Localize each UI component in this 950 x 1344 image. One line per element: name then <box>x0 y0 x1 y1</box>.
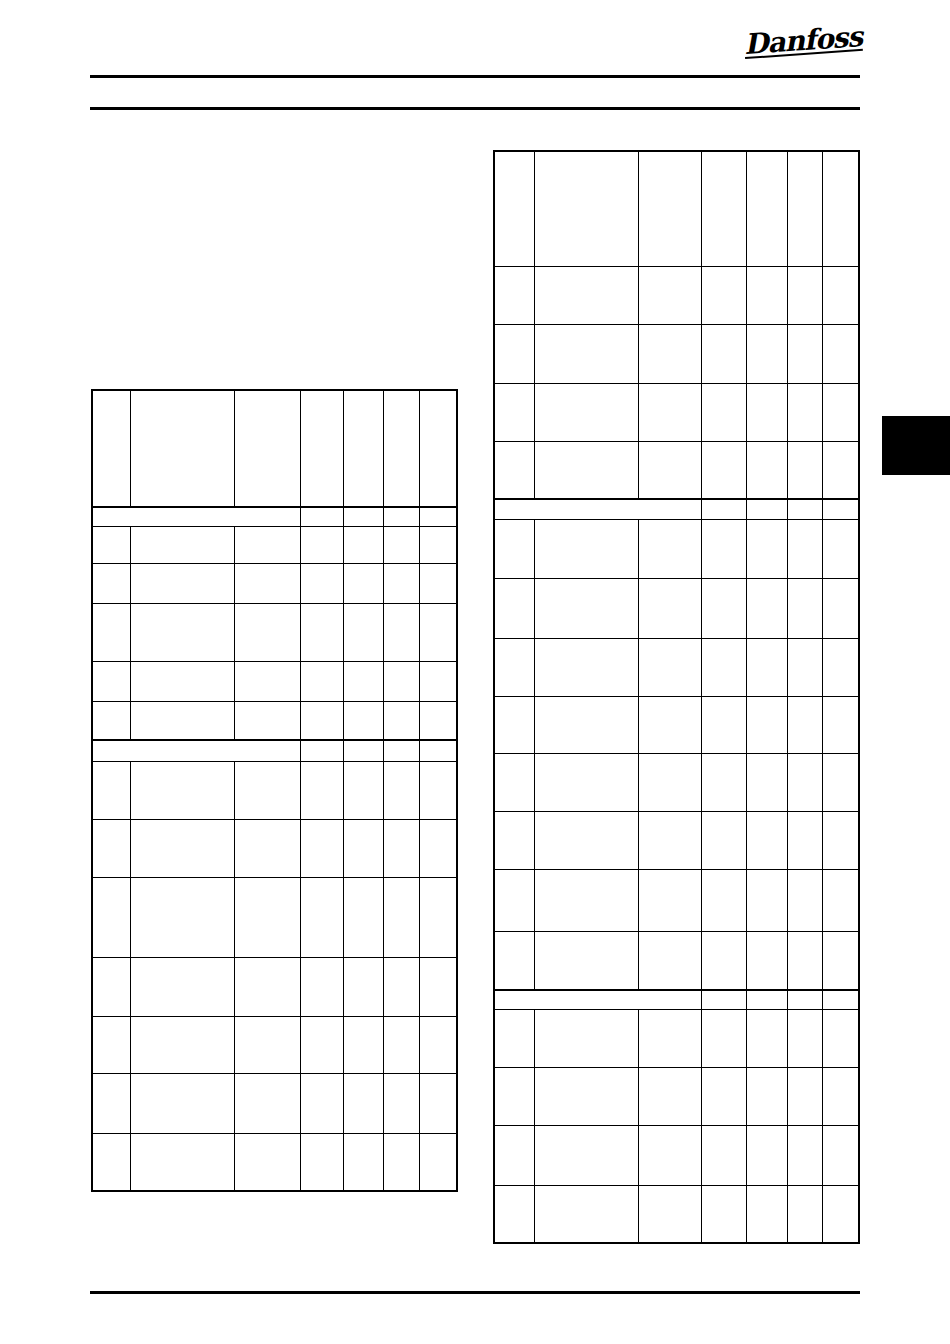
table-cell <box>747 325 788 383</box>
table-cell <box>702 870 747 931</box>
table-cell <box>788 442 823 498</box>
table-cell <box>535 1010 639 1067</box>
table-cell <box>823 870 858 931</box>
header-rule-bottom <box>90 107 860 110</box>
table-cell <box>344 702 384 739</box>
table-cell <box>301 564 344 603</box>
table-cell <box>702 1186 747 1244</box>
table-cell <box>639 697 702 753</box>
table-cell <box>495 812 535 869</box>
table-cell <box>747 1010 788 1067</box>
table-cell <box>639 384 702 441</box>
table-cell <box>788 267 823 324</box>
table-cell <box>420 1074 456 1133</box>
table-cell <box>301 820 344 877</box>
table-row <box>93 527 456 564</box>
table-row <box>495 267 858 325</box>
table-cell <box>344 604 384 661</box>
table-row <box>495 579 858 639</box>
table-cell <box>788 870 823 931</box>
table-cell <box>747 932 788 989</box>
table-cell <box>495 384 535 441</box>
header-rule-top <box>90 75 860 78</box>
table-cell <box>495 870 535 931</box>
table-row <box>495 520 858 579</box>
table-cell <box>747 639 788 696</box>
table-cell <box>344 1134 384 1192</box>
table-cell <box>639 639 702 696</box>
table-cell <box>639 1010 702 1067</box>
table-cell <box>535 1068 639 1125</box>
table-section-band-row <box>93 740 456 762</box>
table-section-band-row <box>93 507 456 527</box>
table-cell <box>535 267 639 324</box>
table-cell <box>823 991 858 1009</box>
table-cell <box>823 325 858 383</box>
table-cell <box>495 697 535 753</box>
table-cell <box>235 702 301 739</box>
table-cell <box>344 1017 384 1073</box>
table-section-band-row <box>495 499 858 520</box>
table-cell <box>747 267 788 324</box>
table-cell <box>495 1068 535 1125</box>
table-cell <box>639 870 702 931</box>
table-cell <box>301 762 344 819</box>
table-row <box>495 870 858 932</box>
table-cell <box>702 325 747 383</box>
table-cell <box>702 932 747 989</box>
table-cell <box>131 762 235 819</box>
table-cell <box>344 391 384 506</box>
table-row <box>495 384 858 442</box>
table-cell <box>747 812 788 869</box>
table-cell <box>301 878 344 957</box>
table-cell <box>93 527 131 563</box>
table-cell <box>823 1010 858 1067</box>
merged-section-cell <box>495 991 702 1009</box>
table-cell <box>344 762 384 819</box>
table-cell <box>535 1126 639 1185</box>
table-cell <box>747 1126 788 1185</box>
table-row <box>93 662 456 702</box>
table-cell <box>788 1186 823 1244</box>
table-cell <box>639 812 702 869</box>
table-cell <box>702 152 747 266</box>
table-cell <box>535 579 639 638</box>
table-cell <box>788 812 823 869</box>
table-row <box>93 762 456 820</box>
table-cell <box>788 520 823 578</box>
table-cell <box>235 762 301 819</box>
table-cell <box>747 991 788 1009</box>
table-cell <box>823 639 858 696</box>
danfoss-logo: Danfoss <box>743 20 863 61</box>
table-cell <box>747 520 788 578</box>
table-cell <box>344 564 384 603</box>
table-cell <box>495 754 535 811</box>
table-cell <box>384 508 420 526</box>
table-cell <box>235 1017 301 1073</box>
table-cell <box>788 1126 823 1185</box>
table-cell <box>535 325 639 383</box>
table-cell <box>639 932 702 989</box>
table-cell <box>93 820 131 877</box>
table-cell <box>535 520 639 578</box>
table-cell <box>639 579 702 638</box>
table-cell <box>384 662 420 701</box>
table-cell <box>639 520 702 578</box>
table-cell <box>495 325 535 383</box>
table-cell <box>384 391 420 506</box>
table-cell <box>420 702 456 739</box>
table-cell <box>301 702 344 739</box>
merged-section-cell <box>495 500 702 519</box>
table-cell <box>420 527 456 563</box>
table-cell <box>788 500 823 519</box>
table-cell <box>384 878 420 957</box>
table-cell <box>702 991 747 1009</box>
table-cell <box>384 604 420 661</box>
table-cell <box>235 1134 301 1192</box>
table-cell <box>747 697 788 753</box>
merged-section-cell <box>93 741 301 761</box>
table-row <box>93 958 456 1017</box>
merged-section-cell <box>93 508 301 526</box>
table-cell <box>702 697 747 753</box>
table-row <box>495 1186 858 1244</box>
table-cell <box>420 820 456 877</box>
table-cell <box>823 932 858 989</box>
table-cell <box>131 564 235 603</box>
table-cell <box>131 662 235 701</box>
table-cell <box>131 1134 235 1192</box>
table-cell <box>93 564 131 603</box>
table-cell <box>301 741 344 761</box>
table-cell <box>535 932 639 989</box>
table-cell <box>788 639 823 696</box>
table-cell <box>235 820 301 877</box>
table-row <box>495 1126 858 1186</box>
table-cell <box>823 1186 858 1244</box>
table-cell <box>131 604 235 661</box>
table-row <box>495 442 858 499</box>
table-cell <box>344 1074 384 1133</box>
table-cell <box>747 579 788 638</box>
table-cell <box>823 754 858 811</box>
table-cell <box>788 697 823 753</box>
table-cell <box>93 1134 131 1192</box>
table-cell <box>420 762 456 819</box>
table-cell <box>131 878 235 957</box>
table-section-band-row <box>495 990 858 1010</box>
table-cell <box>420 741 456 761</box>
table-cell <box>420 878 456 957</box>
table-row <box>93 604 456 662</box>
table-cell <box>93 1017 131 1073</box>
table-cell <box>93 958 131 1016</box>
table-cell <box>788 384 823 441</box>
table-cell <box>495 520 535 578</box>
table-row <box>495 932 858 990</box>
table-cell <box>301 604 344 661</box>
table-cell <box>823 500 858 519</box>
table-cell <box>235 527 301 563</box>
table-cell <box>93 1074 131 1133</box>
table-cell <box>384 958 420 1016</box>
table-cell <box>420 958 456 1016</box>
table-cell <box>495 579 535 638</box>
table-cell <box>235 391 301 506</box>
table-cell <box>235 1074 301 1133</box>
table-cell <box>495 267 535 324</box>
table-cell <box>747 754 788 811</box>
table-cell <box>747 1068 788 1125</box>
table-cell <box>823 1126 858 1185</box>
table-cell <box>535 812 639 869</box>
table-row <box>495 639 858 697</box>
table-cell <box>535 442 639 498</box>
table-cell <box>823 579 858 638</box>
table-cell <box>235 878 301 957</box>
table-cell <box>747 870 788 931</box>
table-cell <box>702 1068 747 1125</box>
table-cell <box>788 1068 823 1125</box>
table-cell <box>702 1010 747 1067</box>
table-cell <box>495 1126 535 1185</box>
table-cell <box>535 870 639 931</box>
table-cell <box>823 697 858 753</box>
table-row <box>93 1074 456 1134</box>
table-row <box>495 325 858 384</box>
table-cell <box>384 1017 420 1073</box>
table-cell <box>131 702 235 739</box>
table-row <box>93 1134 456 1192</box>
table-cell <box>344 527 384 563</box>
table-cell <box>235 662 301 701</box>
table-cell <box>384 1134 420 1192</box>
table-cell <box>93 604 131 661</box>
table-cell <box>747 442 788 498</box>
table-cell <box>788 932 823 989</box>
table-row <box>495 754 858 812</box>
section-index-tab <box>882 416 950 475</box>
table-cell <box>344 508 384 526</box>
table-cell <box>639 442 702 498</box>
table-row <box>93 820 456 878</box>
table-cell <box>384 820 420 877</box>
table-cell <box>93 391 131 506</box>
table-cell <box>788 1010 823 1067</box>
table-cell <box>344 662 384 701</box>
table-cell <box>823 267 858 324</box>
table-cell <box>384 527 420 563</box>
table-cell <box>420 564 456 603</box>
table-cell <box>131 527 235 563</box>
table-cell <box>495 1010 535 1067</box>
table-cell <box>639 1068 702 1125</box>
table-cell <box>788 754 823 811</box>
table-cell <box>420 508 456 526</box>
table-cell <box>823 520 858 578</box>
table-cell <box>495 1186 535 1244</box>
table-row <box>495 812 858 870</box>
table-cell <box>702 500 747 519</box>
table-cell <box>702 812 747 869</box>
table-cell <box>131 958 235 1016</box>
table-cell <box>747 500 788 519</box>
table-cell <box>420 1134 456 1192</box>
table-row <box>495 1010 858 1068</box>
table-cell <box>301 1134 344 1192</box>
table-row <box>93 1017 456 1074</box>
table-cell <box>301 662 344 701</box>
table-cell <box>788 152 823 266</box>
table-cell <box>639 1126 702 1185</box>
table-cell <box>344 741 384 761</box>
table-cell <box>301 391 344 506</box>
table-cell <box>535 152 639 266</box>
table-cell <box>235 564 301 603</box>
table-cell <box>702 442 747 498</box>
parameter-table-left <box>91 389 458 1192</box>
table-cell <box>131 1017 235 1073</box>
table-cell <box>823 1068 858 1125</box>
table-cell <box>420 1017 456 1073</box>
table-cell <box>93 662 131 701</box>
table-cell <box>420 662 456 701</box>
table-cell <box>301 1074 344 1133</box>
table-cell <box>823 442 858 498</box>
table-cell <box>823 812 858 869</box>
table-cell <box>235 958 301 1016</box>
table-cell <box>384 702 420 739</box>
table-cell <box>535 697 639 753</box>
table-cell <box>301 958 344 1016</box>
table-cell <box>301 508 344 526</box>
table-cell <box>384 564 420 603</box>
table-cell <box>702 754 747 811</box>
table-cell <box>788 579 823 638</box>
table-cell <box>420 604 456 661</box>
table-cell <box>495 442 535 498</box>
table-cell <box>788 991 823 1009</box>
table-cell <box>495 639 535 696</box>
table-cell <box>420 391 456 506</box>
table-cell <box>131 1074 235 1133</box>
table-cell <box>93 762 131 819</box>
table-cell <box>535 384 639 441</box>
table-cell <box>344 958 384 1016</box>
table-row <box>495 697 858 754</box>
table-cell <box>702 579 747 638</box>
table-cell <box>702 267 747 324</box>
table-row <box>93 878 456 958</box>
table-cell <box>93 702 131 739</box>
parameter-table-right <box>493 150 860 1244</box>
table-row <box>93 702 456 740</box>
table-cell <box>639 1186 702 1244</box>
footer-rule <box>90 1291 860 1294</box>
table-cell <box>495 932 535 989</box>
table-row <box>93 391 456 507</box>
table-cell <box>747 1186 788 1244</box>
table-cell <box>131 820 235 877</box>
table-cell <box>384 741 420 761</box>
document-page: Danfoss <box>0 0 950 1344</box>
table-cell <box>823 384 858 441</box>
table-cell <box>535 754 639 811</box>
table-cell <box>639 152 702 266</box>
table-cell <box>639 325 702 383</box>
table-cell <box>344 878 384 957</box>
table-cell <box>495 152 535 266</box>
table-cell <box>702 1126 747 1185</box>
table-cell <box>788 325 823 383</box>
table-cell <box>747 384 788 441</box>
table-cell <box>235 604 301 661</box>
table-cell <box>535 639 639 696</box>
table-cell <box>344 820 384 877</box>
table-cell <box>702 384 747 441</box>
table-cell <box>301 527 344 563</box>
table-cell <box>702 520 747 578</box>
table-cell <box>639 754 702 811</box>
table-cell <box>639 267 702 324</box>
table-cell <box>301 1017 344 1073</box>
table-cell <box>93 878 131 957</box>
table-row <box>93 564 456 604</box>
table-cell <box>384 1074 420 1133</box>
table-cell <box>131 391 235 506</box>
table-row <box>495 1068 858 1126</box>
table-cell <box>823 152 858 266</box>
table-row <box>495 152 858 267</box>
table-cell <box>747 152 788 266</box>
table-cell <box>535 1186 639 1244</box>
table-cell <box>384 762 420 819</box>
table-cell <box>702 639 747 696</box>
